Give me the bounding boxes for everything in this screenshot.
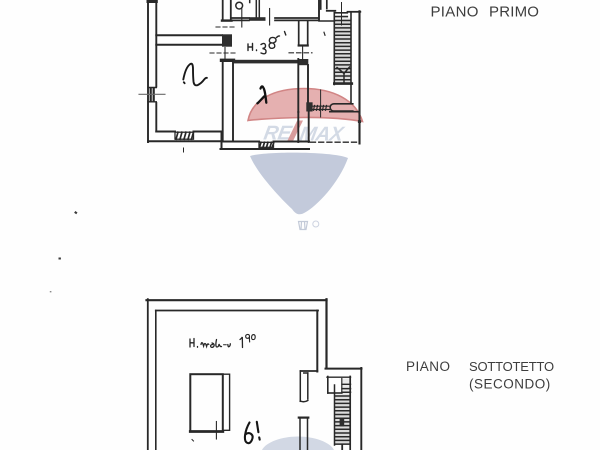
svg-text:PRIMO: PRIMO: [489, 4, 539, 21]
svg-text:PIANO: PIANO: [406, 359, 451, 374]
svg-text:PIANO: PIANO: [431, 4, 479, 21]
svg-text:(SECONDO): (SECONDO): [469, 377, 551, 392]
svg-text:SOTTOTETTO: SOTTOTETTO: [469, 359, 554, 374]
